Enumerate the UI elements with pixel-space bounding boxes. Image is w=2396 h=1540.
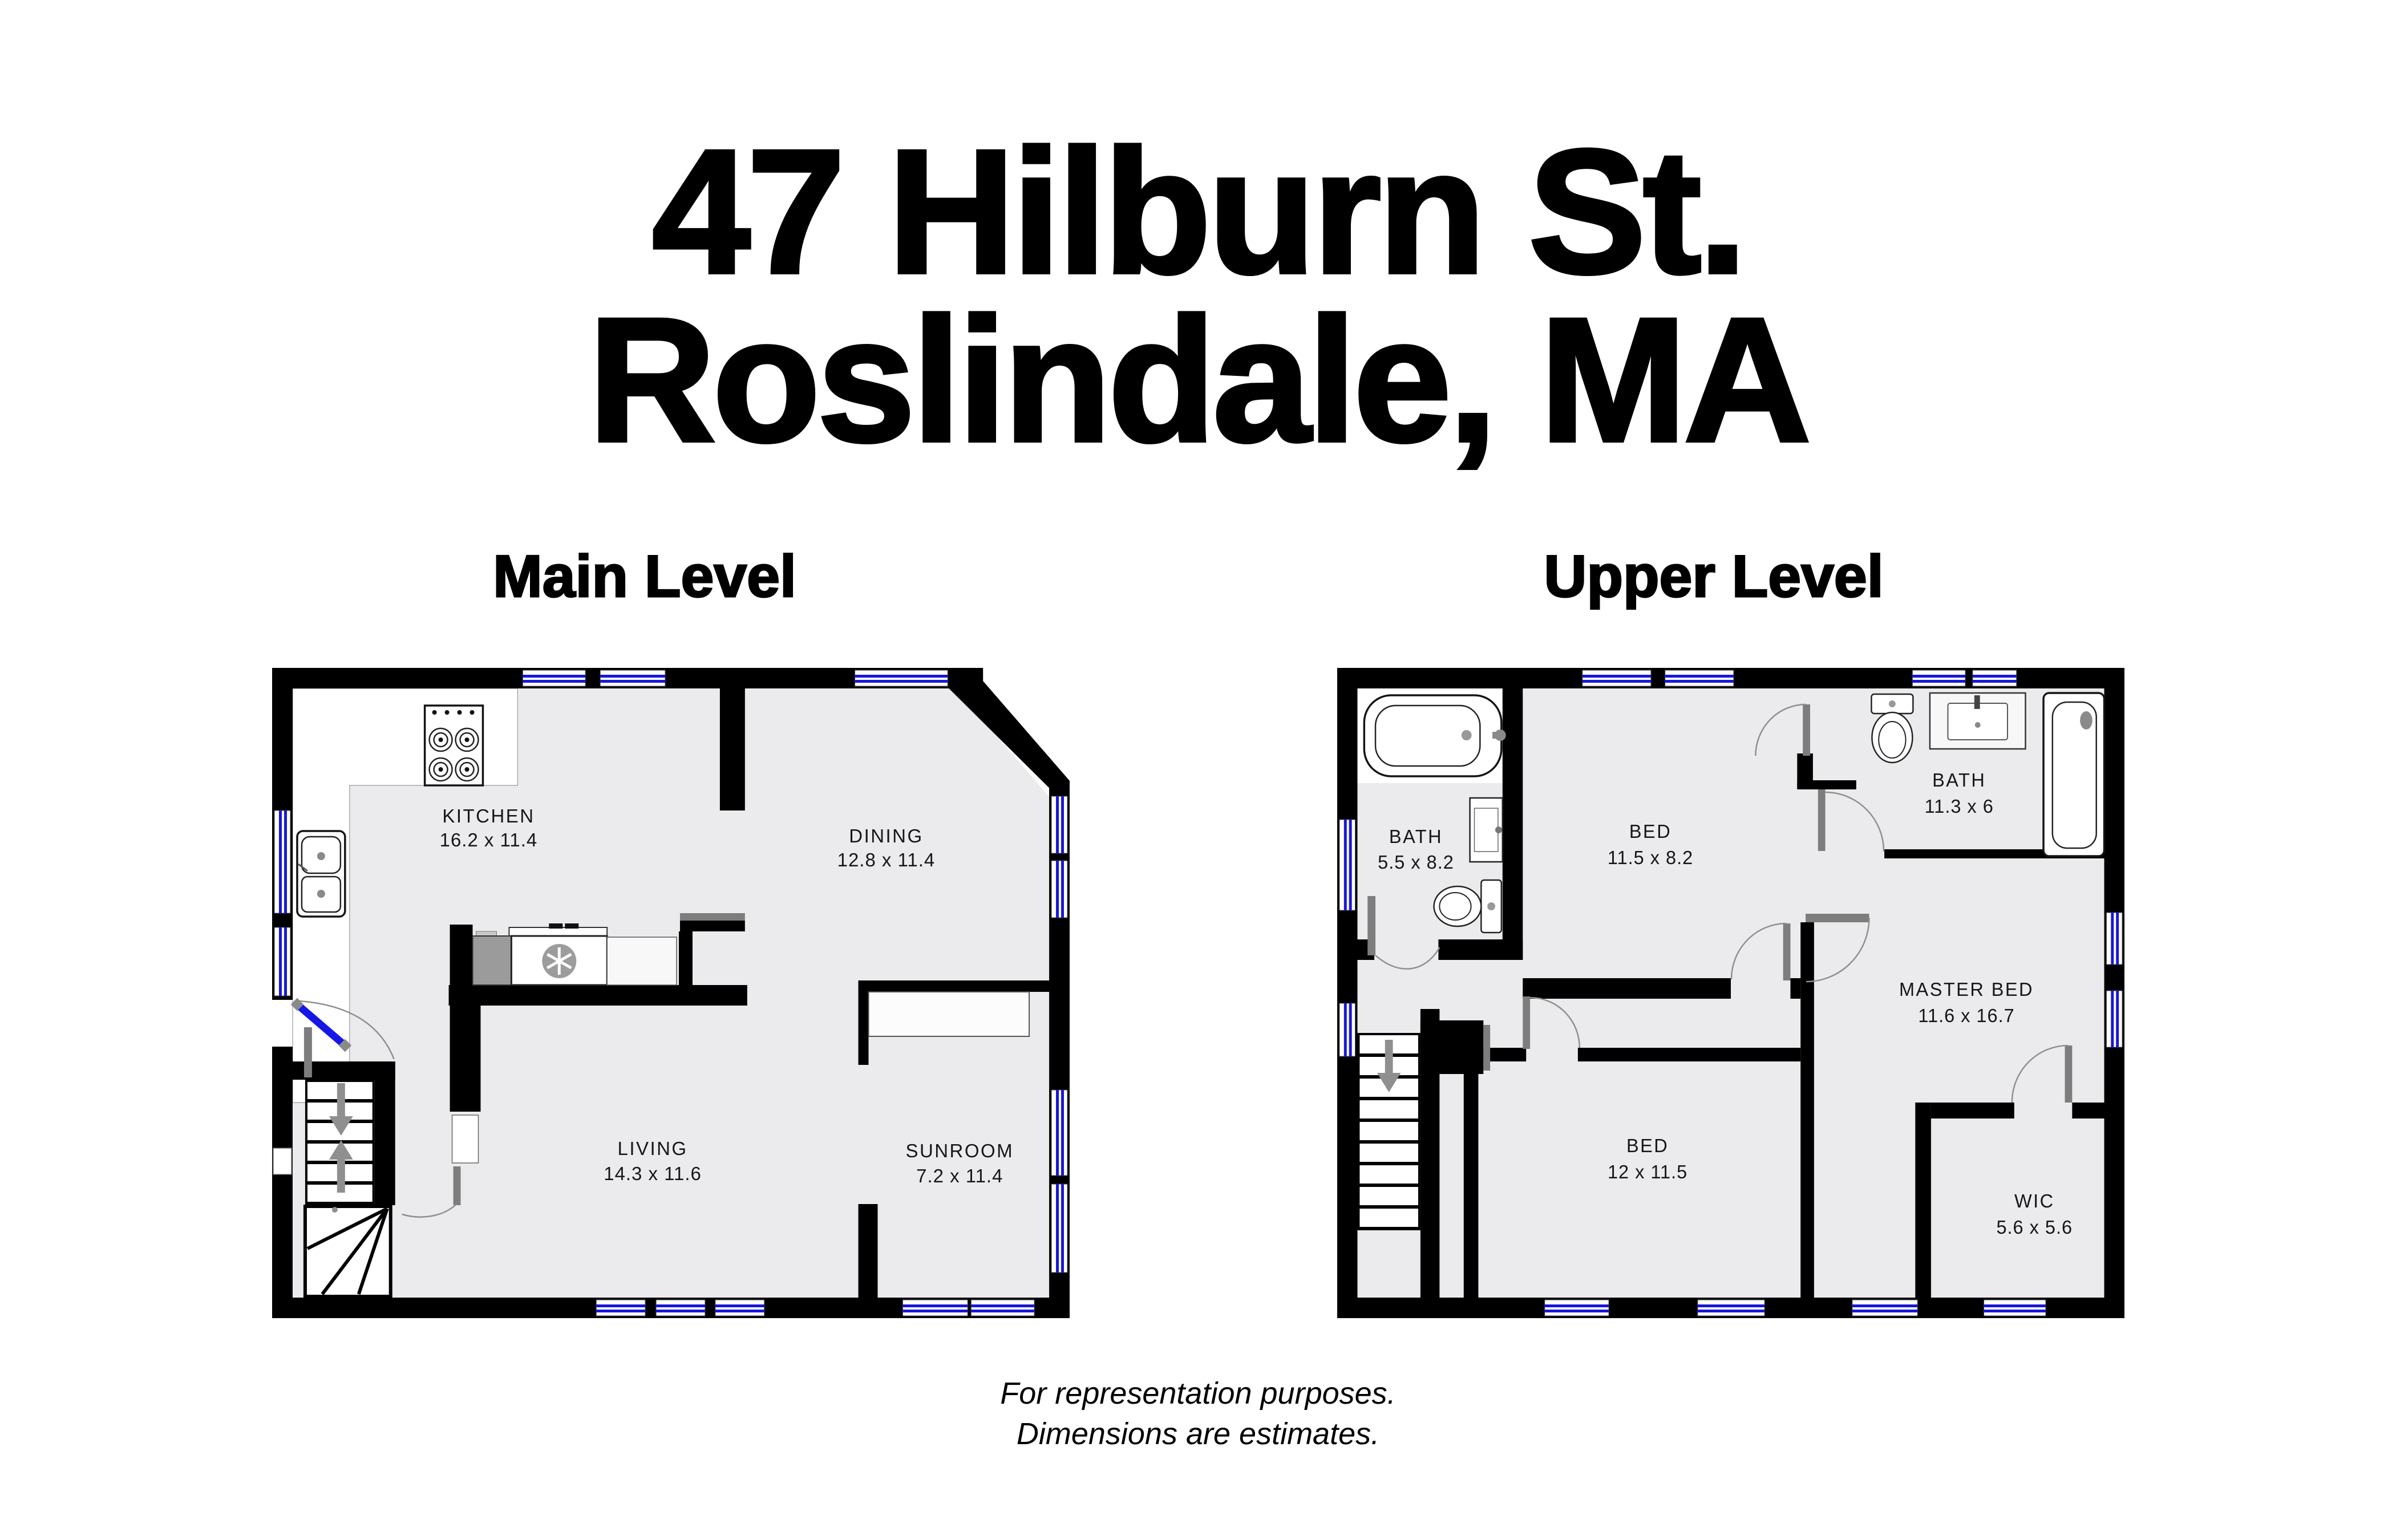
disclaimer: For representation purposes. Dimensions … <box>0 1373 2396 1455</box>
upper-stairs <box>1357 1033 1420 1230</box>
room-label-bath-right: BATH <box>1932 769 1986 791</box>
stove-icon <box>425 706 483 785</box>
room-dims-wic: 5.6 x 5.6 <box>1996 1217 2073 1238</box>
appliance-box <box>452 1115 479 1163</box>
room-label-bed-top: BED <box>1629 821 1671 842</box>
built-in-cabinet <box>869 992 1030 1036</box>
room-dims-bath-left: 5.5 x 8.2 <box>1378 852 1454 873</box>
page-title: 47 Hilburn St. Roslindale, MA <box>0 128 2396 464</box>
upper-level-floorplan: BATH 5.5 x 8.2 BED 11.5 x 8.2 BATH 11.3 … <box>1337 668 2124 1318</box>
room-label-master-bed: MASTER BED <box>1899 979 2034 1000</box>
page-title-line2: Roslindale, MA <box>0 296 2396 464</box>
page-title-line1: 47 Hilburn St. <box>0 128 2396 296</box>
disclaimer-line1: For representation purposes. <box>0 1373 2396 1414</box>
kitchen-sink-icon <box>297 831 345 917</box>
snowflake-icon <box>542 944 576 978</box>
room-dims-kitchen: 16.2 x 11.4 <box>440 829 538 850</box>
room-label-sunroom: SUNROOM <box>906 1140 1014 1161</box>
room-label-living: LIVING <box>618 1138 688 1159</box>
bathtub-icon <box>1364 695 1505 776</box>
room-dims-sunroom: 7.2 x 11.4 <box>916 1165 1003 1186</box>
room-dims-dining: 12.8 x 11.4 <box>837 849 936 870</box>
wall-panel <box>273 1148 292 1174</box>
main-level-heading: Main Level <box>245 543 1044 611</box>
vanity-sink-icon <box>1470 798 1503 862</box>
main-level-floorplan: KITCHEN 16.2 x 11.4 DINING 12.8 x 11.4 L… <box>272 668 1070 1318</box>
room-dims-bed-top: 11.5 x 8.2 <box>1608 847 1693 868</box>
room-label-bath-left: BATH <box>1389 826 1443 847</box>
room-dims-master-bed: 11.6 x 16.7 <box>1918 1005 2014 1026</box>
room-label-wic: WIC <box>2014 1190 2055 1211</box>
room-dims-bath-right: 11.3 x 6 <box>1925 796 1994 817</box>
shower-icon <box>2043 693 2104 856</box>
room-dims-bed-lower: 12 x 11.5 <box>1608 1161 1687 1182</box>
disclaimer-line2: Dimensions are estimates. <box>0 1414 2396 1454</box>
upper-level-heading: Upper Level <box>1314 543 2113 611</box>
toilet-icon <box>1871 694 1913 763</box>
room-label-bed-lower: BED <box>1626 1135 1669 1156</box>
room-dims-living: 14.3 x 11.6 <box>604 1163 702 1184</box>
dishwasher-icon <box>472 936 511 985</box>
room-label-kitchen: KITCHEN <box>442 805 535 826</box>
room-label-dining: DINING <box>849 825 923 846</box>
vanity-sink-icon <box>1930 693 2026 749</box>
